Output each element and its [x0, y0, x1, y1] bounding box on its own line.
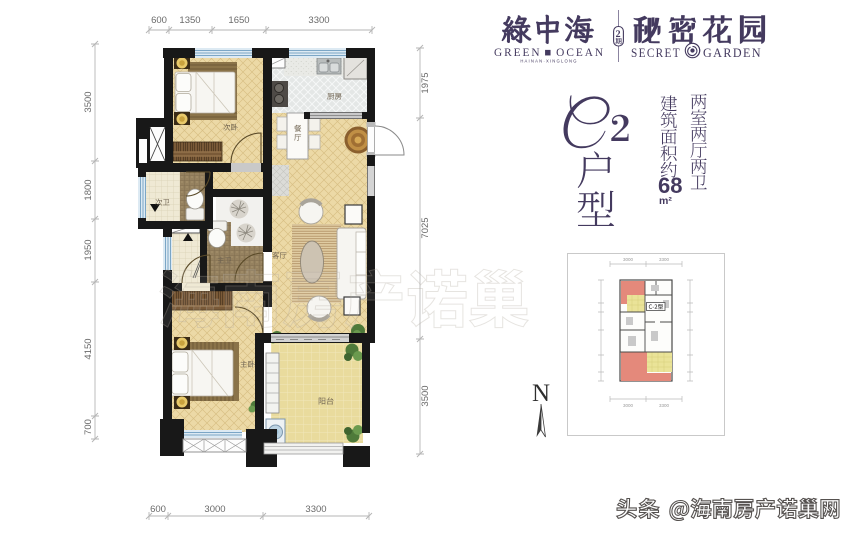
svg-text:1800: 1800 [83, 179, 94, 200]
svg-text:1350: 1350 [179, 15, 200, 26]
svg-text:600: 600 [151, 15, 167, 26]
svg-text:3000: 3000 [623, 257, 634, 262]
svg-text:1950: 1950 [83, 239, 94, 260]
svg-text:4150: 4150 [83, 338, 94, 359]
svg-text:m²: m² [659, 195, 672, 207]
svg-text:GREEN ■ OCEAN: GREEN ■ OCEAN [494, 47, 605, 59]
svg-text:600: 600 [150, 504, 166, 515]
svg-text:1975: 1975 [420, 72, 431, 93]
svg-text:3500: 3500 [83, 91, 94, 112]
svg-text:3300: 3300 [308, 15, 329, 26]
svg-text:3300: 3300 [305, 504, 326, 515]
svg-text:GARDEN: GARDEN [703, 46, 762, 60]
svg-text:3300: 3300 [659, 403, 670, 408]
svg-text:3000: 3000 [623, 403, 634, 408]
svg-text:3500: 3500 [420, 385, 431, 406]
svg-text:700: 700 [83, 419, 94, 435]
svg-text:3000: 3000 [204, 504, 225, 515]
svg-text:1650: 1650 [228, 15, 249, 26]
svg-text:3300: 3300 [659, 257, 670, 262]
svg-text:SECRET: SECRET [631, 46, 681, 60]
svg-text:N: N [532, 380, 550, 407]
svg-text:7025: 7025 [420, 217, 431, 238]
svg-text:HAINAN·XINGLONG: HAINAN·XINGLONG [520, 59, 577, 64]
